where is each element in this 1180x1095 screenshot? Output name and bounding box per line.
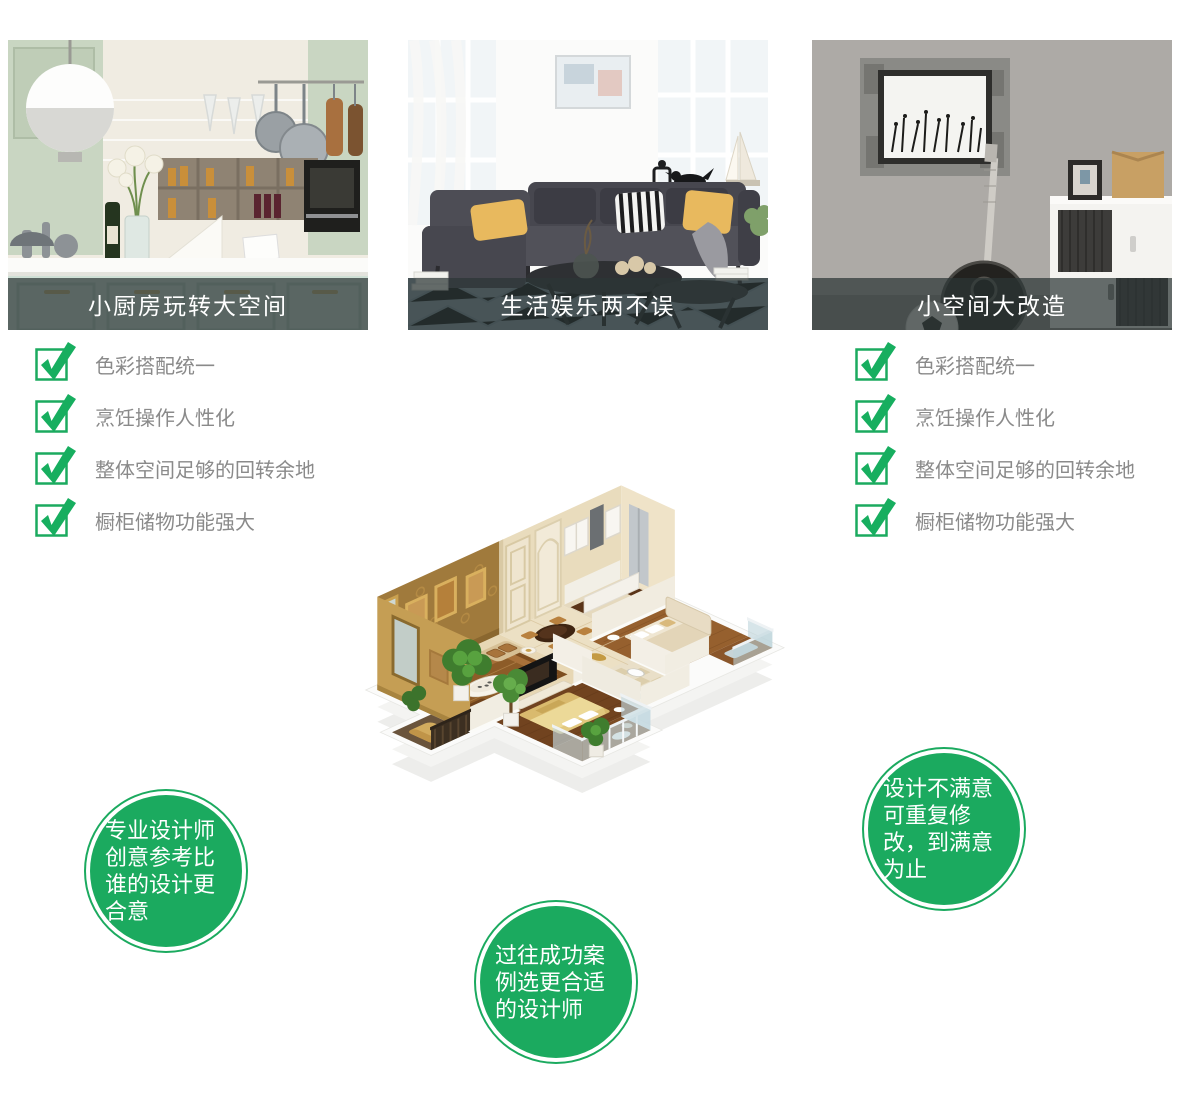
- checkbox-checked-icon: [35, 452, 67, 484]
- badge-text: 过往成功案例选更合适的设计师: [480, 942, 618, 1023]
- check-item-label: 烹饪操作人性化: [95, 402, 235, 431]
- check-item-label: 整体空间足够的回转余地: [95, 454, 315, 483]
- card-caption: 小空间大改造: [812, 278, 1172, 330]
- check-item: 烹饪操作人性化: [855, 400, 1180, 432]
- checkbox-checked-icon: [855, 504, 887, 536]
- checkbox-checked-icon: [35, 348, 67, 380]
- check-item-label: 烹饪操作人性化: [915, 402, 1055, 431]
- checkbox-checked-icon: [855, 452, 887, 484]
- check-item: 色彩搭配统一: [35, 348, 365, 380]
- check-item: 整体空间足够的回转余地: [35, 452, 365, 484]
- check-item: 整体空间足够的回转余地: [855, 452, 1180, 484]
- card-caption: 小厨房玩转大空间: [8, 278, 368, 330]
- floor-plan-3d-illustration: [335, 478, 805, 818]
- feature-card-livingroom[interactable]: 生活娱乐两不误: [408, 40, 768, 330]
- check-item: 色彩搭配统一: [855, 348, 1180, 380]
- check-item-label: 橱柜储物功能强大: [915, 506, 1075, 535]
- checkbox-checked-icon: [855, 348, 887, 380]
- check-item-label: 色彩搭配统一: [95, 350, 215, 379]
- feature-card-kitchen[interactable]: 小厨房玩转大空间: [8, 40, 368, 330]
- promo-page: 小厨房玩转大空间: [0, 0, 1180, 1095]
- card-caption: 生活娱乐两不误: [408, 278, 768, 330]
- badge-text: 设计不满意可重复修改，到满意为止: [868, 775, 1006, 883]
- checklist-right: 色彩搭配统一 烹饪操作人性化 整体空间足够的回转余地 橱柜储物功能强大: [855, 348, 1180, 556]
- check-item: 烹饪操作人性化: [35, 400, 365, 432]
- checkbox-checked-icon: [855, 400, 887, 432]
- feature-card-smallspace[interactable]: 小空间大改造: [812, 40, 1172, 330]
- checkbox-checked-icon: [35, 504, 67, 536]
- check-item-label: 橱柜储物功能强大: [95, 506, 255, 535]
- check-item-label: 色彩搭配统一: [915, 350, 1035, 379]
- badge-unlimited-revisions: 设计不满意可重复修改，到满意为止: [868, 753, 1020, 905]
- check-item: 橱柜储物功能强大: [35, 504, 365, 536]
- check-item-label: 整体空间足够的回转余地: [915, 454, 1135, 483]
- check-item: 橱柜储物功能强大: [855, 504, 1180, 536]
- badge-designer-ideas: 专业设计师创意参考比谁的设计更合意: [90, 795, 242, 947]
- checkbox-checked-icon: [35, 400, 67, 432]
- badge-success-cases: 过往成功案例选更合适的设计师: [480, 906, 632, 1058]
- checklist-left: 色彩搭配统一 烹饪操作人性化 整体空间足够的回转余地 橱柜储物功能强大: [35, 348, 365, 556]
- badge-text: 专业设计师创意参考比谁的设计更合意: [90, 817, 228, 925]
